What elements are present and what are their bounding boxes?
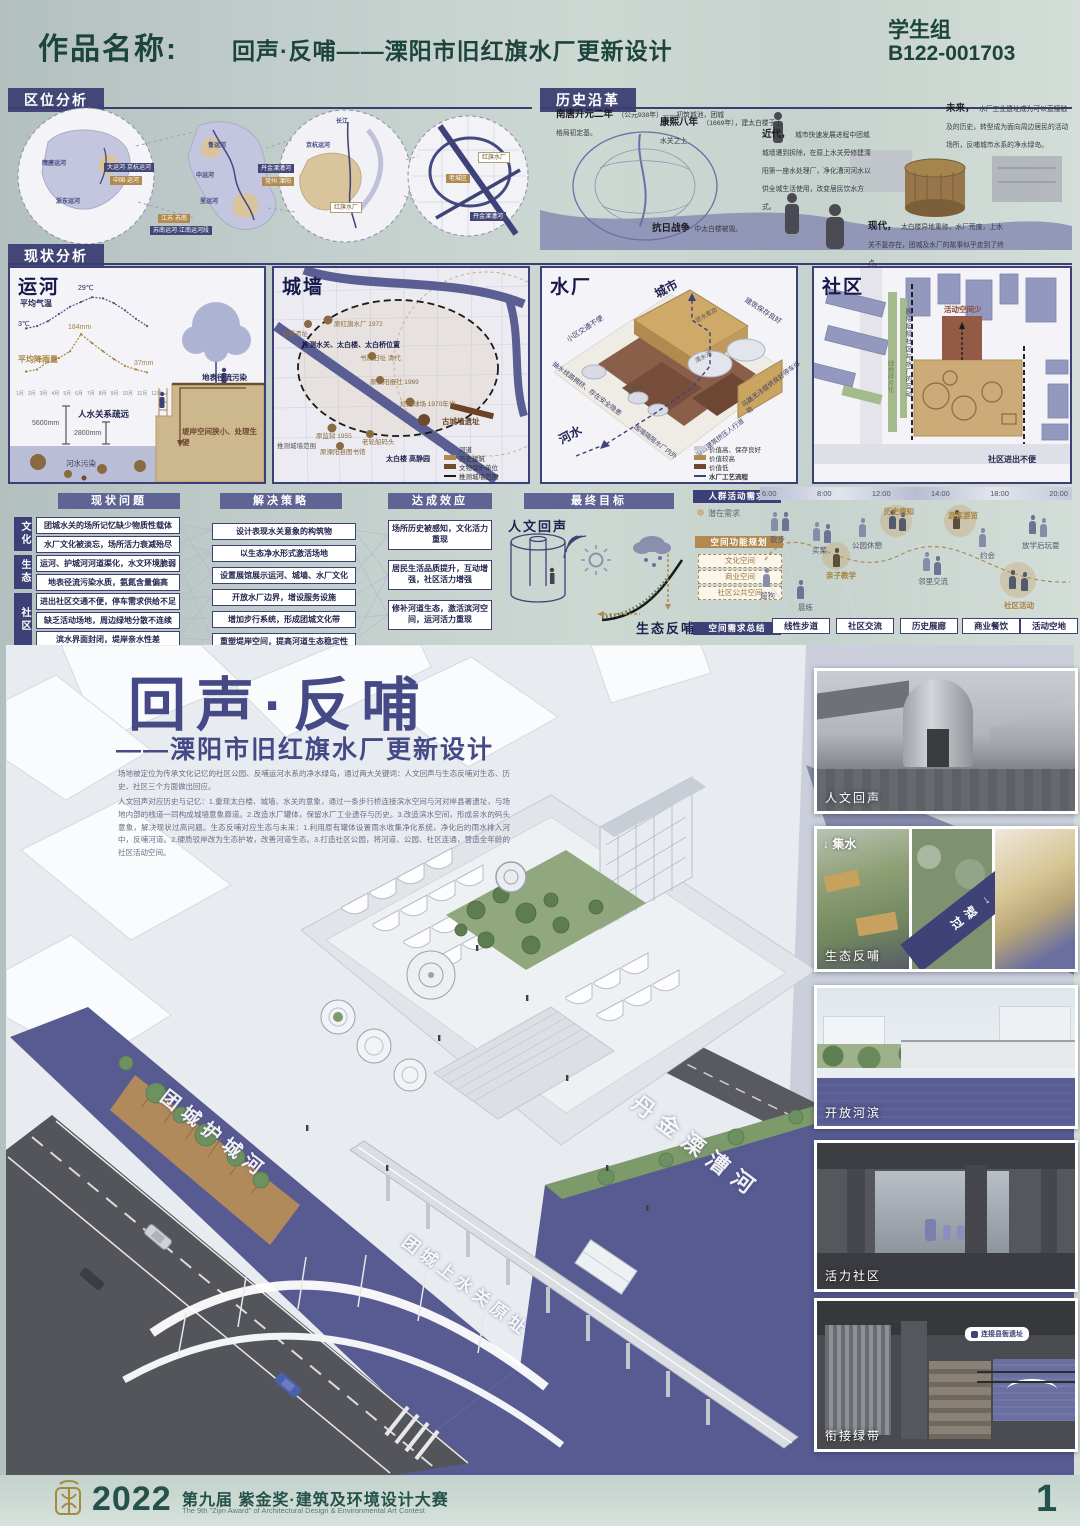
activity-label: 约会 [980,550,995,561]
entry-code: B122-001703 [888,42,1015,66]
activity-label: 晨练 [798,602,813,613]
problems-header: 现状问题 [58,493,180,509]
render-paragraph-2: 人文回声对应历史与记忆：1.重现太白楼、城墙、水关的意象，通过一条步行桥连接滨水… [118,796,510,860]
event-text: 中太白楼被毁。 [694,226,742,233]
tank-circle [917,845,941,869]
problem-item: 团城水关的场所记忆缺少物质性载体 [36,517,180,534]
down-arrow-icon: ↓ [823,837,832,851]
person-figure [1039,518,1048,537]
problem-item: 运河、护城河河道渠化，水文环境脆弱 [36,555,180,572]
activity-label: 游客游览 [948,510,978,521]
event-era: 未来， [946,103,975,114]
column [847,1169,865,1261]
figure [925,1219,936,1241]
activity-label: 买菜 [812,545,827,556]
history-event: 现代， 太白楼异地重修，水厂荒废，上水关不复存在，团城及水厂的故事似乎走到了终点… [868,216,1008,270]
legend-swatch-process [694,475,706,477]
category-culture: 文化 [14,517,32,551]
community-note: 社区进出不便 [988,454,1036,465]
panel-title: 水厂 [550,272,592,299]
problem-item: 缺乏活动场地，周边绿地分散不连续 [36,612,180,629]
bubble-label: 连接县衙遗址 [981,1329,1023,1339]
person-figure [1020,572,1029,591]
solution-item: 开放水厂边界，增设服务设施 [212,589,356,606]
gallery-caption: 衔接绿带 [825,1427,881,1444]
collect-label-wrap: ↓ 集水 [823,835,856,852]
effect-item: 修补河道生态，激活滨河空间，运河活力重现 [388,600,492,630]
problem-item: 水厂文化被淡忘，场所活力衰减殆尽 [36,536,180,553]
steps-photo [995,829,1075,969]
gallery-caption: 活力社区 [825,1267,881,1284]
solution-item: 以生态净水形式激活场地 [212,545,356,562]
ceiling-beam [817,1143,1075,1169]
activity-label: 放学后玩耍 [1022,540,1060,551]
community-note: 围墙阻隔社区与水厂的互动 [902,308,912,398]
need-legend-dot [697,509,704,516]
community-note: 活动空间少 [944,304,982,315]
render-subtitle: ——溧阳市旧红旗水厂更新设计 [116,730,494,766]
solutions-header: 解决策略 [220,493,342,509]
riverside-pavilion [901,1040,1075,1068]
footer-contest-subtitle: The 9th "Zijin Award" of Architectural D… [182,1506,425,1515]
group-label: 学生组 [888,14,951,44]
effect-item: 场所历史被感知，文化活力重现 [388,520,492,550]
solution-item: 设置展馆展示运河、城墙、水厂文化 [212,567,356,584]
need-legend-label: 潜在需求 [708,508,740,519]
site-icon [971,1331,978,1338]
activity-label: 历史感知 [884,506,914,517]
glass-wall [825,1325,891,1435]
effects-header: 达成效应 [388,493,492,509]
event-era: 康熙八年 [660,117,698,128]
railing [977,1371,1075,1373]
gallery-card-vital-community: 活力社区 [814,1140,1078,1292]
panel-plant: 水厂 城市 河水 小区交通不便 建筑保存良好 抽水线路拥挤、存在安全隐患 围墙隔… [540,266,798,484]
figure [957,1225,965,1240]
goal-header: 最终目标 [524,493,674,509]
gallery-caption: 生态反哺 [825,947,881,964]
plant-legend: 价值高、保存良好 价值较高 价值低 水厂工艺流程 [694,444,761,480]
goal-eco-label: 生态反哺 [636,618,696,637]
person-figure [858,518,867,537]
person-figure [832,548,841,567]
effect-item: 居民生活品质提升，互动增强，社区活力增强 [388,560,492,590]
person-figure [933,556,942,575]
opening [875,1171,1009,1253]
activity-label: 社区活动 [1004,600,1034,611]
summary-item: 历史展廊 [900,618,958,634]
gallery-card-open-riverside: 开放河滨 [814,985,1078,1129]
history-event: 未来， 水厂工业遗址成为可以直接触及的历史，转型成为面向周边居民的活动场所，反哺… [946,98,1074,152]
render-paragraph-1: 场地被定位为传承文化记忆的社区公园、反哺运河水系的净水绿岛，通过两大关键词：人文… [118,768,510,794]
figure [943,1225,951,1240]
summary-item: 线性步道 [772,618,830,634]
person-figure [978,528,987,547]
community-plan-illustration [814,268,1070,482]
event-text: 城市快速发展进程中团城城墙遭到拆除，在原上水关旁修建溧阳第一座水处理厂，净化漕河… [762,132,871,211]
history-event: 近代， 城市快速发展进程中团城城墙遭到拆除，在原上水关旁修建溧阳第一座水处理厂，… [762,124,874,214]
zijin-seal-icon [52,1480,86,1520]
event-era: 现代， [868,221,897,232]
activity-label: 公园休憩 [852,540,882,551]
gallery-card-eco-feedback: ↓ 集水 过滤 ↓ 生态反哺 [814,826,1078,972]
gallery-card-human-echo: 人文回声 [814,668,1078,814]
summary-item: 社区交流 [836,618,894,634]
gallery-caption: 开放河滨 [825,1104,881,1121]
column [965,1165,987,1265]
page-number: 1 [1036,1478,1057,1521]
column [1041,1169,1057,1263]
activity-label: 散步 [770,534,785,545]
person-figure [781,512,790,531]
category-ecology: 生态 [14,555,32,589]
person-figure [762,568,771,587]
gallery-caption: 人文回声 [825,789,881,806]
activity-label: 邻里交流 [918,576,948,587]
event-era: 南唐升元二年 [556,109,613,120]
panel-community: 社区 活动空间少 围墙阻隔社区与水厂的互动 绿地碎片化 社区进出不便 [812,266,1072,484]
activity-label: 亲子教学 [826,570,856,581]
footer-year: 2022 [92,1480,172,1519]
collect-label: 集水 [832,837,856,851]
poster-root: 作品名称: 回声·反哺——溧阳市旧红旗水厂更新设计 学生组 B122-00170… [0,0,1080,1526]
tower-door [927,729,949,767]
filter-arrow-icon: ↓ [979,892,992,907]
history-event: 抗日战争 中太白楼被毁。 [652,218,752,236]
callout-bubble: 连接县衙遗址 [965,1327,1029,1341]
person-figure [1008,570,1017,589]
person-figure [1028,515,1037,534]
legend-swatch-high [694,446,706,451]
legend-swatch-low [694,464,706,469]
legend-swatch-mid [694,455,706,460]
person-figure [770,512,779,531]
event-era: 抗日战争 [652,223,690,234]
person-figure [796,580,805,599]
problem-item: 地表径流污染水质，氨氮含量偏高 [36,574,180,591]
panel-title: 社区 [822,272,864,299]
community-note: 绿地碎片化 [884,360,894,393]
summary-item: 活动空地 [1020,618,1078,634]
problem-item: 进出社区交通不便，停车需求供给不足 [36,593,180,610]
highlight-spot [1000,562,1036,598]
person-figure [823,524,832,543]
solution-item: 增加步行系统，形成团城文化带 [212,611,356,628]
railing [977,1381,1075,1383]
solution-item: 设计表现水关意象的构筑物 [212,523,356,540]
activity-label: 遛狗 [760,590,775,601]
event-era: 近代， [762,129,791,140]
gallery-card-green-link: 连接县衙遗址 衔接绿带 [814,1298,1078,1452]
legend-label: 水厂工艺流程 [709,471,748,481]
person-figure [812,522,821,541]
category-community: 社区 [14,593,32,646]
column [901,1321,927,1439]
person-figure [922,552,931,571]
summary-item: 商业餐饮 [962,618,1020,634]
